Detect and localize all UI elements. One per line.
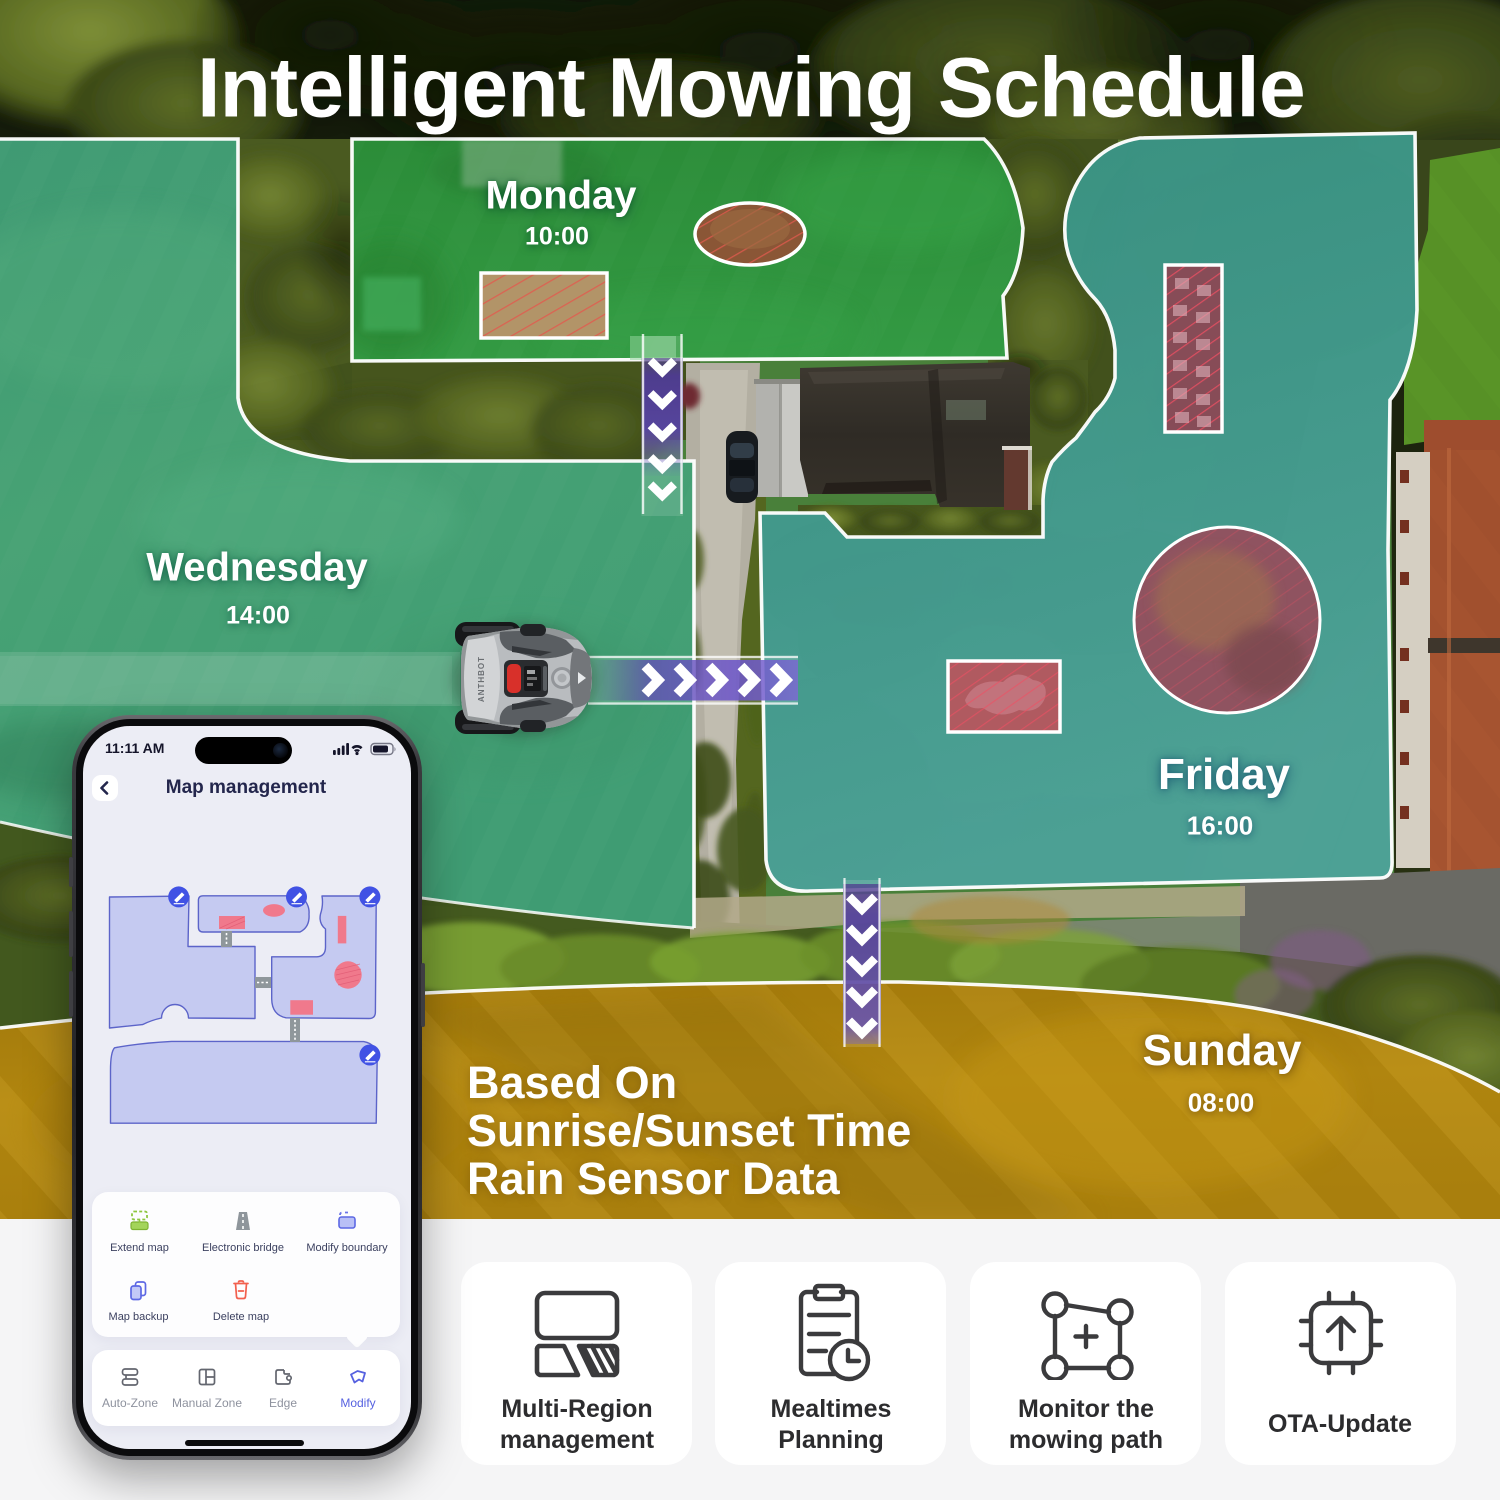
svg-text:ANTHBOT: ANTHBOT bbox=[477, 656, 486, 702]
